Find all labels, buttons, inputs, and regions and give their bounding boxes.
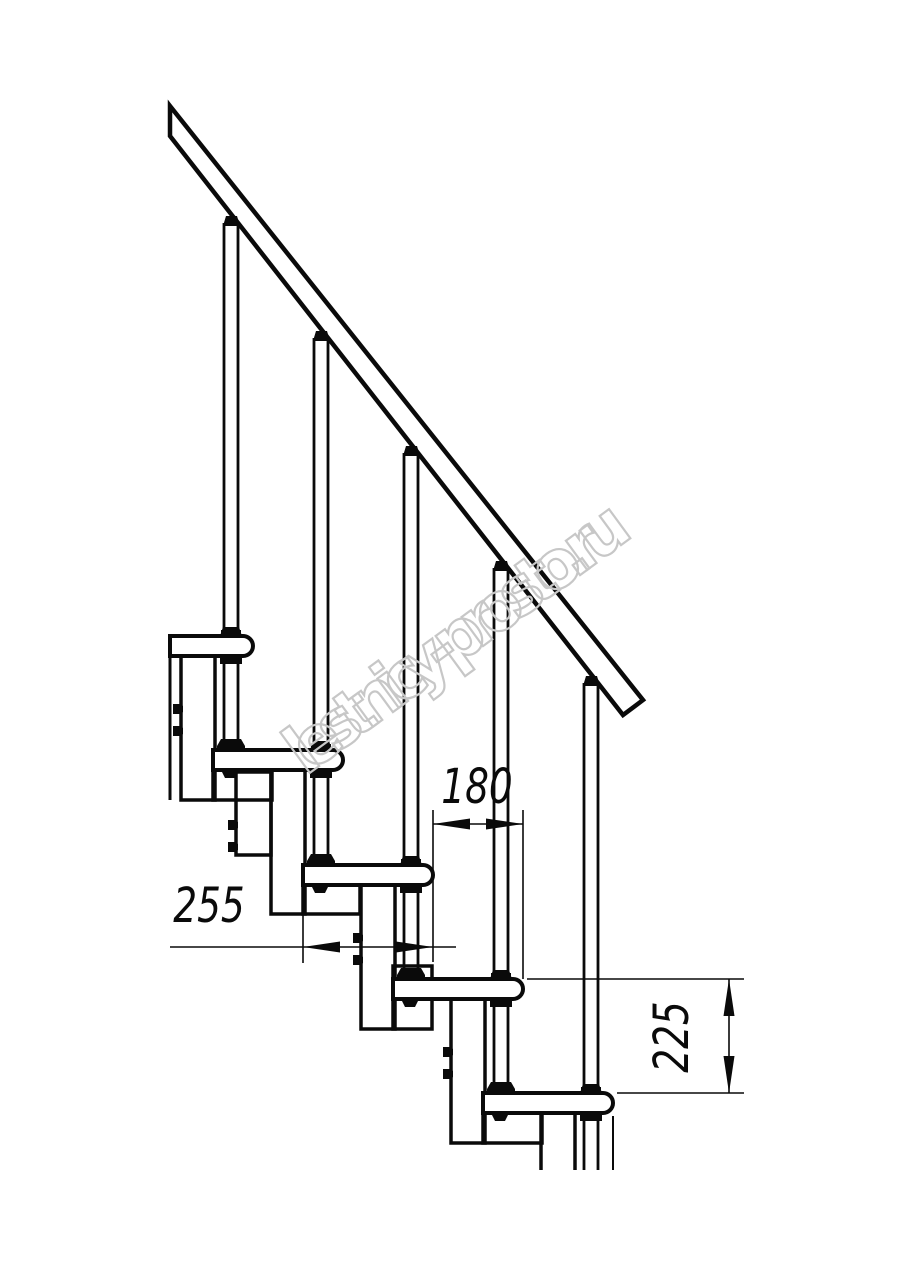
support-column-4 [451,999,485,1143]
staircase-drawing-page: 180 255 225 lestnicy-prosto.ru [0,0,914,1280]
dimension-label-tread-depth: 255 [173,879,244,935]
bolt-icon [228,842,238,852]
baluster-base-collar [221,630,241,636]
bolt-icon [353,933,363,943]
dimension-180 [433,810,523,979]
bolt-icon [443,1069,453,1079]
dimension-225 [527,979,744,1093]
bolt-icon [353,955,363,965]
dimension-label-step-run: 180 [441,760,512,816]
dimension-arrow-icon [396,942,433,953]
dimension-arrow-icon [433,819,470,830]
support-column-3 [361,885,395,1029]
tread-underside-clip [311,885,329,893]
support-column-2 [271,770,305,914]
support-column-1 [181,656,215,800]
module-connector-4 [483,1112,542,1143]
dimension-arrow-icon [724,1056,735,1093]
tread-underside-clip [401,999,419,1007]
baluster-base-collar [581,1087,601,1093]
tread-4 [393,979,523,999]
module-clamp-2 [236,772,271,855]
handrail [170,106,643,715]
module-connector-2 [303,883,360,914]
step-group-1 [170,216,272,800]
bolt-icon [443,1047,453,1057]
step-group-2 [213,331,360,914]
tread-5 [483,1093,613,1113]
bolt-icon [228,820,238,830]
dimension-label-step-rise: 225 [645,1001,701,1072]
tread-underside-clip [491,1113,509,1121]
dimension-arrow-icon [303,942,340,953]
bolt-icon [173,704,183,714]
step-group-5 [483,676,613,1170]
tread-1 [170,636,253,656]
baluster-top-collar [223,216,240,226]
tread-3 [303,865,433,885]
dimension-arrow-icon [724,979,735,1016]
baluster-base-collar [491,973,511,979]
staircase-technical-drawing: 180 255 225 lestnicy-prosto.ru [0,0,914,1280]
baluster-base-collar [401,859,421,865]
dimension-arrow-icon [486,819,523,830]
bolt-icon [173,726,183,736]
